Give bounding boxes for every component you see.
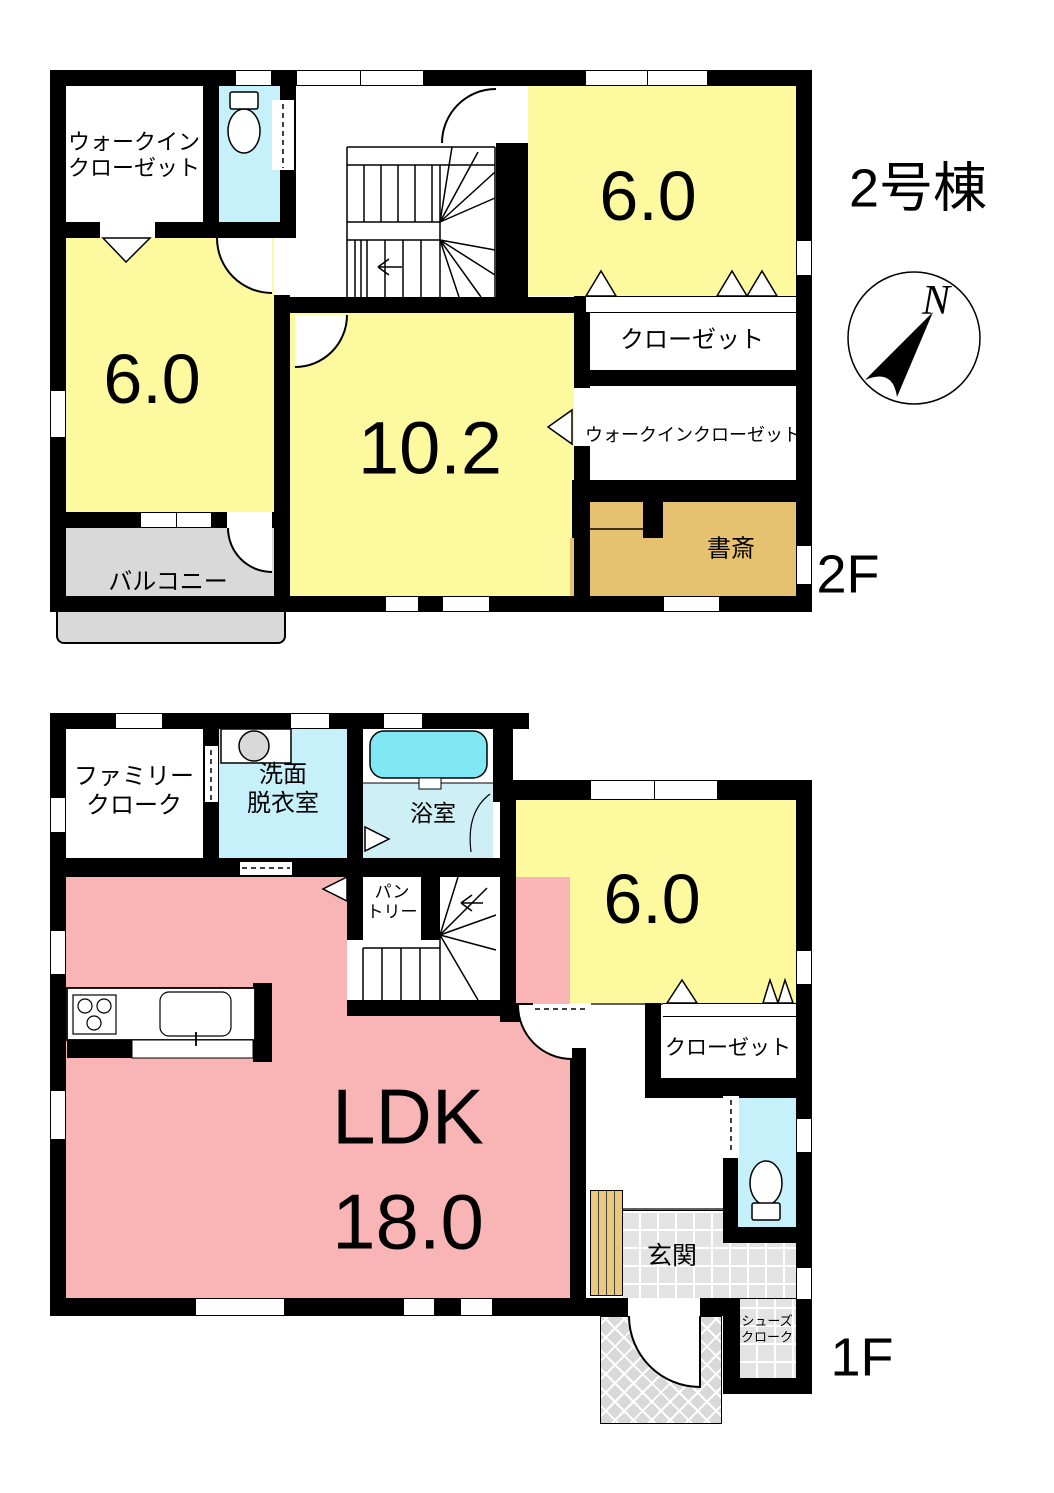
- window: [663, 596, 720, 612]
- wall: [572, 480, 812, 502]
- f1-bathroom-label: 浴室: [410, 800, 456, 828]
- f2-staircase: [347, 147, 495, 297]
- door-opening: [100, 222, 155, 238]
- window: [796, 1118, 812, 1153]
- wall: [570, 1048, 586, 1298]
- f2-walk-in-closet-label: ウォークインクローゼット: [68, 130, 200, 183]
- window: [50, 1090, 66, 1140]
- door-arc: [441, 88, 496, 143]
- f1-pantry-label: パントリー: [367, 883, 418, 924]
- f1-entrance-label: 玄関: [647, 1241, 697, 1271]
- wall: [643, 502, 663, 538]
- f2-closet-label: クローゼット: [620, 327, 764, 356]
- window: [235, 70, 272, 86]
- window: [290, 713, 330, 729]
- window: [195, 1298, 285, 1316]
- wall: [723, 1227, 796, 1243]
- f2-walk-in-closet-e-label: ウォークインクローゼット: [585, 425, 801, 447]
- window: [383, 713, 423, 729]
- window: [296, 70, 424, 86]
- wall: [723, 1155, 738, 1230]
- f2-balcony-label: バルコニー: [108, 569, 228, 598]
- wall: [290, 297, 590, 313]
- wall: [347, 877, 363, 940]
- window: [796, 240, 812, 276]
- window: [403, 1298, 435, 1316]
- wall: [203, 713, 219, 877]
- window: [460, 1298, 493, 1316]
- wall: [347, 1000, 516, 1016]
- f2-bedroom-main-label: 10.2: [358, 405, 502, 494]
- f1-bedroom-label: 6.0: [603, 857, 700, 941]
- f1-toilet-room: [738, 1098, 796, 1227]
- door-opening: [628, 1298, 700, 1316]
- wall: [723, 1298, 740, 1378]
- f1-closet-label: クローゼット: [665, 1035, 791, 1060]
- wall: [347, 713, 363, 877]
- door-opening: [496, 86, 528, 143]
- window: [796, 1267, 812, 1300]
- plan-title: 2号棟: [849, 157, 987, 222]
- f2-study-label: 書斎: [707, 536, 755, 565]
- wall: [50, 858, 513, 877]
- compass-icon: N: [848, 272, 980, 404]
- door-opening: [227, 512, 272, 528]
- window: [385, 596, 419, 612]
- window: [50, 390, 66, 438]
- closet-door-track: [663, 1003, 796, 1017]
- window: [585, 70, 708, 86]
- wall: [496, 143, 528, 297]
- wall: [645, 1078, 812, 1098]
- window: [140, 512, 212, 528]
- wall: [796, 70, 812, 612]
- window: [50, 797, 66, 833]
- floor-plan-canvas: N 2号棟 2F 1F ウォークインクローゼット 6.0 6.0 10.2 クロ…: [0, 0, 1054, 1493]
- wall: [574, 370, 796, 386]
- window-mullion: [654, 781, 655, 799]
- f2-bedroom-ne-label: 6.0: [599, 154, 696, 238]
- wall: [50, 1298, 723, 1316]
- window: [442, 596, 490, 612]
- f2-bedroom-w-label: 6.0: [103, 337, 200, 421]
- wall: [500, 800, 516, 1022]
- window-mullion: [176, 513, 177, 527]
- wall: [50, 222, 296, 238]
- balcony-outline: [56, 612, 286, 644]
- wall: [723, 1378, 812, 1394]
- window-mullion: [647, 71, 648, 85]
- f1-ldk-label: LDK18.0: [332, 1065, 484, 1276]
- f1-floor-label: 1F: [830, 1326, 893, 1391]
- window: [50, 930, 66, 975]
- window: [796, 545, 812, 585]
- f1-washroom-label: 洗面脱衣室: [247, 761, 319, 819]
- f2-floor-label: 2F: [816, 543, 879, 608]
- wall: [67, 1040, 132, 1058]
- wall: [253, 983, 272, 1062]
- wall: [421, 877, 440, 940]
- f1-entrance-step: [590, 1190, 623, 1296]
- wall: [572, 502, 590, 538]
- door-opening: [274, 238, 290, 295]
- closet-door-track: [586, 296, 796, 313]
- window: [796, 950, 812, 985]
- wall: [280, 70, 296, 238]
- window: [115, 713, 163, 729]
- window-mullion: [360, 71, 361, 85]
- window: [590, 780, 718, 800]
- compass-north-label: N: [921, 278, 952, 324]
- f2-toilet-room: [219, 86, 280, 222]
- f2-study-room: [590, 502, 796, 596]
- f1-shoe-cloak-label: シューズクローク: [741, 1313, 793, 1344]
- wall: [50, 70, 66, 612]
- wall: [203, 70, 219, 222]
- f1-family-cloak-label: ファミリークローク: [74, 763, 194, 821]
